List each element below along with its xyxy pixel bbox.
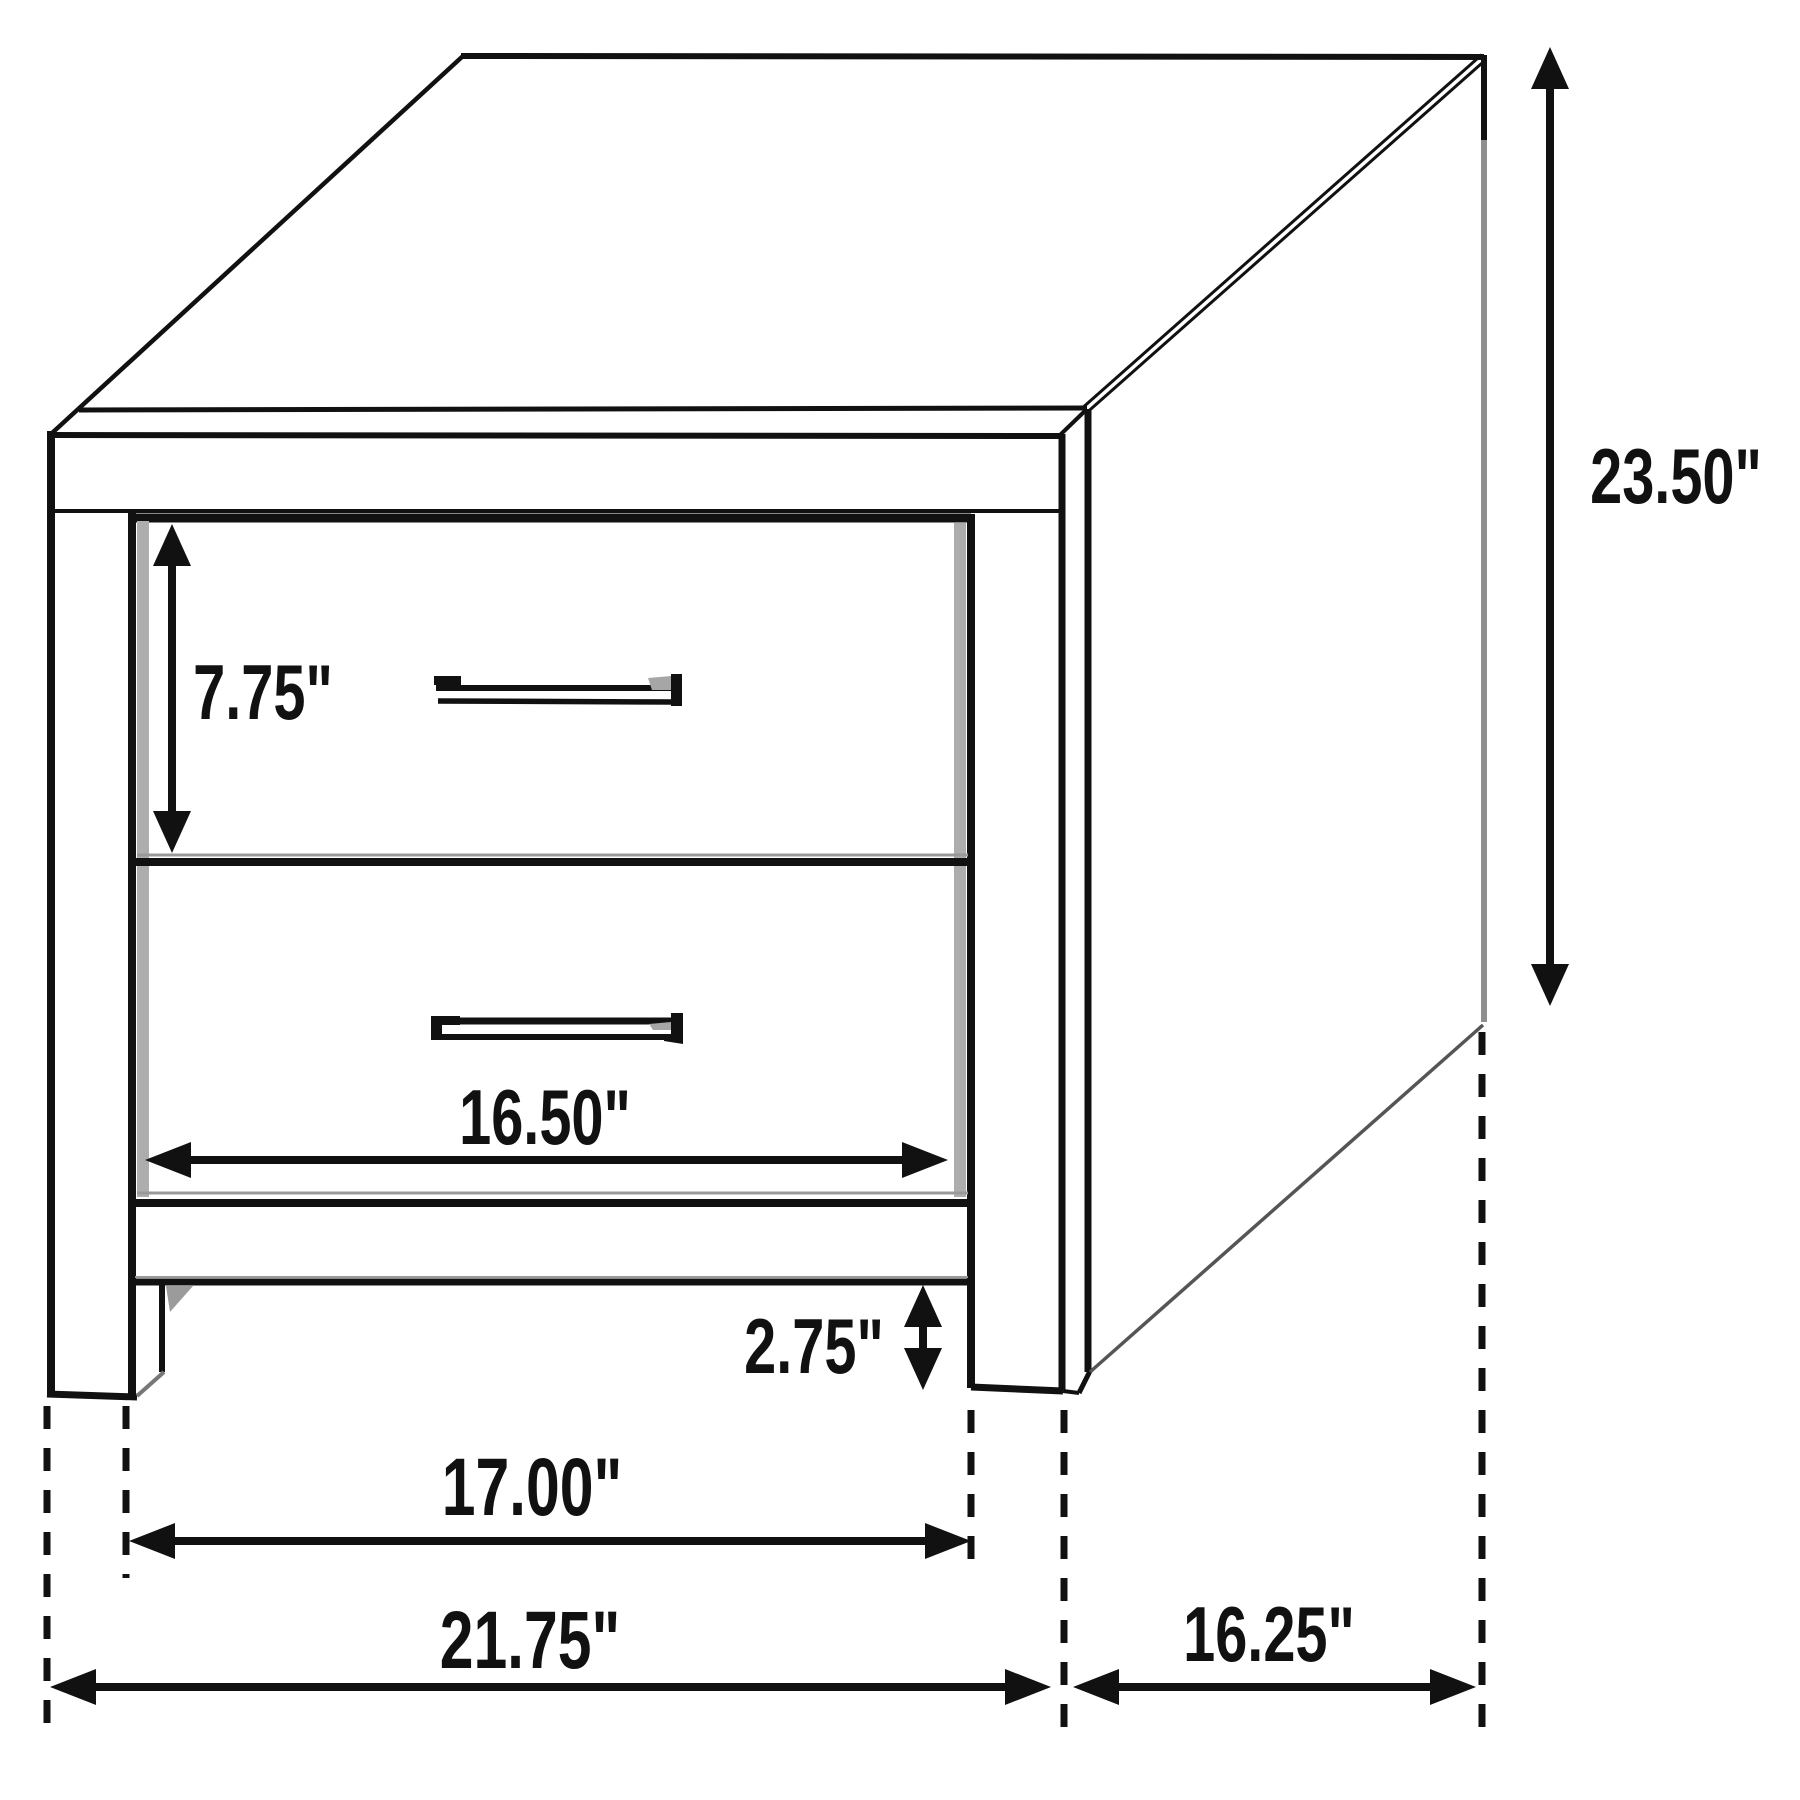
- svg-text:7.75": 7.75": [193, 649, 333, 737]
- svg-text:21.75": 21.75": [440, 1595, 621, 1686]
- svg-text:16.25": 16.25": [1183, 1591, 1355, 1679]
- svg-text:17.00": 17.00": [442, 1442, 623, 1533]
- svg-text:23.50": 23.50": [1590, 433, 1762, 521]
- svg-text:16.50": 16.50": [459, 1074, 631, 1162]
- svg-text:2.75": 2.75": [744, 1303, 884, 1391]
